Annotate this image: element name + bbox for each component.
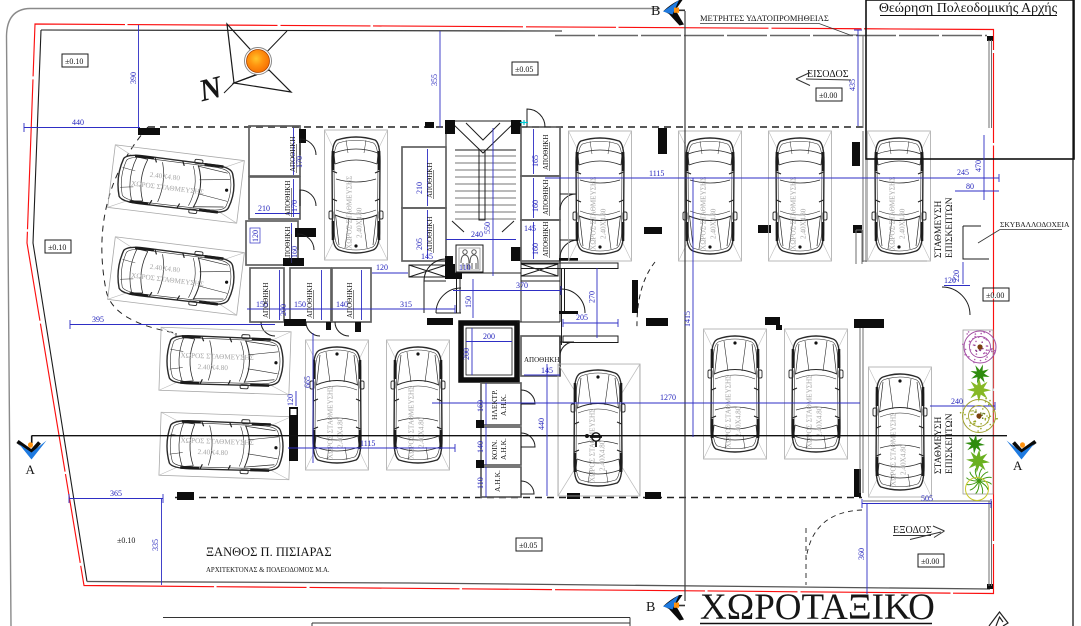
svg-text:270: 270 — [588, 291, 597, 303]
svg-text:160: 160 — [476, 400, 485, 412]
svg-text:±0.00: ±0.00 — [819, 91, 837, 100]
svg-text:505: 505 — [921, 494, 933, 503]
svg-text:210: 210 — [415, 182, 424, 194]
svg-text:160: 160 — [531, 200, 540, 212]
svg-text:110: 110 — [476, 477, 485, 489]
svg-text:170: 170 — [295, 156, 304, 168]
svg-text:ΕΠΙΣΚΕΠΤΩΝ: ΕΠΙΣΚΕΠΤΩΝ — [945, 413, 955, 474]
svg-text:ΑΠΟΘΗΚΗ: ΑΠΟΘΗΚΗ — [426, 217, 434, 252]
svg-text:440: 440 — [72, 118, 84, 127]
svg-text:170: 170 — [290, 200, 299, 212]
svg-text:ΞΑΝΘΟΣ Π. ΠΙΣΙΑΡΑΣ: ΞΑΝΘΟΣ Π. ΠΙΣΙΑΡΑΣ — [206, 545, 332, 559]
svg-text:120: 120 — [944, 276, 956, 285]
svg-text:ΑΠΟΘΗΚΗ: ΑΠΟΘΗΚΗ — [426, 163, 434, 198]
svg-text:ΑΠΟΘΗΚΗ: ΑΠΟΘΗΚΗ — [306, 283, 314, 318]
svg-text:150: 150 — [294, 300, 306, 309]
svg-text:120: 120 — [376, 263, 388, 272]
svg-text:±0.00: ±0.00 — [921, 557, 939, 566]
svg-text:±0.05: ±0.05 — [515, 65, 533, 74]
svg-text:Θεώρηση Πολεοδομικής Αρχής: Θεώρηση Πολεοδομικής Αρχής — [879, 1, 1058, 16]
svg-text:ΕΞΟΔΟΣ: ΕΞΟΔΟΣ — [893, 525, 932, 536]
svg-text:240: 240 — [471, 230, 483, 239]
svg-text:355: 355 — [430, 74, 439, 86]
svg-text:145: 145 — [421, 252, 433, 261]
svg-text:ΧΩΡΟΤΑΞΙΚΟ: ΧΩΡΟΤΑΞΙΚΟ — [700, 587, 935, 626]
svg-text:±0.10: ±0.10 — [117, 536, 135, 545]
svg-text:ΑΠΟΘΗΚΗ: ΑΠΟΘΗΚΗ — [542, 135, 550, 170]
svg-text:160: 160 — [290, 246, 299, 258]
svg-text:335: 335 — [151, 539, 160, 551]
svg-text:210: 210 — [258, 204, 270, 213]
svg-text:360: 360 — [857, 548, 866, 560]
svg-text:395: 395 — [92, 315, 104, 324]
svg-text:±0.10: ±0.10 — [65, 57, 83, 66]
svg-text:205: 205 — [415, 238, 424, 250]
svg-text:120: 120 — [251, 230, 260, 242]
svg-text:ΑΠΟΘΗΚΗ: ΑΠΟΘΗΚΗ — [262, 283, 270, 318]
svg-text:ΑΡΧΙΤΕΚΤΟΝΑΣ & ΠΟΛΕΟΔΟΜΟΣ Μ.Α.: ΑΡΧΙΤΕΚΤΟΝΑΣ & ΠΟΛΕΟΔΟΜΟΣ Μ.Α. — [206, 567, 330, 574]
svg-text:A: A — [1013, 458, 1023, 473]
svg-text:150: 150 — [464, 296, 473, 308]
svg-text:ΑΠΟΘΗΚΗ: ΑΠΟΘΗΚΗ — [346, 283, 354, 318]
svg-text:A: A — [26, 462, 36, 477]
svg-text:145: 145 — [524, 224, 536, 233]
svg-text:165: 165 — [531, 155, 540, 167]
svg-text:ΕΠΙΣΚΕΠΤΩΝ: ΕΠΙΣΚΕΠΤΩΝ — [945, 197, 955, 258]
svg-text:1270: 1270 — [660, 393, 676, 402]
svg-text:ΑΠΟΘΗΚΗ: ΑΠΟΘΗΚΗ — [542, 222, 550, 257]
svg-text:205: 205 — [576, 313, 588, 322]
svg-text:665: 665 — [303, 376, 312, 388]
svg-text:200: 200 — [462, 348, 471, 360]
svg-text:Α.Η.Κ.: Α.Η.Κ. — [499, 394, 508, 416]
svg-text:ΣΤΑΘΜΕΥΣΗ: ΣΤΑΘΜΕΥΣΗ — [934, 200, 944, 258]
svg-text:80: 80 — [966, 182, 974, 191]
svg-text:Α.Η.Κ.: Α.Η.Κ. — [493, 470, 502, 492]
svg-text:±0.00: ±0.00 — [986, 291, 1004, 300]
svg-text:370: 370 — [516, 281, 528, 290]
svg-text:160: 160 — [531, 243, 540, 255]
svg-text:Α.Η.Κ.: Α.Η.Κ. — [499, 438, 508, 460]
svg-text:B: B — [646, 600, 655, 615]
svg-text:1115: 1115 — [649, 169, 664, 178]
svg-text:1115: 1115 — [360, 439, 375, 448]
svg-text:ΣΚΥΒΑΛΛΟΔΟΧΕΙΑ: ΣΚΥΒΑΛΛΟΔΟΧΕΙΑ — [1000, 220, 1070, 229]
svg-text:120: 120 — [286, 394, 295, 406]
svg-text:B: B — [651, 4, 660, 19]
svg-text:390: 390 — [129, 72, 138, 84]
svg-text:470: 470 — [974, 160, 983, 172]
svg-text:200: 200 — [279, 304, 288, 316]
svg-text:1415: 1415 — [683, 311, 692, 327]
svg-text:ΜΕΤΡΗΤΕΣ ΥΔΑΤΟΠΡΟΜΗΘΕΙΑΣ: ΜΕΤΡΗΤΕΣ ΥΔΑΤΟΠΡΟΜΗΘΕΙΑΣ — [700, 13, 829, 23]
svg-text:365: 365 — [110, 489, 122, 498]
svg-text:ΑΠΟΘΗΚΗ: ΑΠΟΘΗΚΗ — [542, 180, 550, 215]
svg-text:110: 110 — [459, 263, 471, 272]
svg-text:±0.10: ±0.10 — [48, 243, 66, 252]
svg-text:ΕΙΣΟΔΟΣ: ΕΙΣΟΔΟΣ — [807, 69, 849, 80]
svg-text:145: 145 — [541, 366, 553, 375]
svg-text:550: 550 — [483, 222, 492, 234]
svg-text:200: 200 — [483, 332, 495, 341]
svg-text:140: 140 — [476, 441, 485, 453]
svg-text:±0.05: ±0.05 — [519, 541, 537, 550]
svg-text:240: 240 — [951, 397, 963, 406]
svg-text:435: 435 — [848, 79, 857, 91]
svg-text:ΣΤΑΘΜΕΥΣΗ: ΣΤΑΘΜΕΥΣΗ — [934, 416, 944, 474]
svg-text:440: 440 — [537, 418, 546, 430]
svg-text:ΗΛΕΚΤΡ.: ΗΛΕΚΤΡ. — [490, 390, 499, 420]
svg-text:315: 315 — [400, 300, 412, 309]
svg-text:245: 245 — [957, 168, 969, 177]
svg-text:ΚΟΙΝ.: ΚΟΙΝ. — [490, 440, 499, 460]
svg-text:ΑΠΟΘΗΚΗ: ΑΠΟΘΗΚΗ — [524, 356, 559, 364]
